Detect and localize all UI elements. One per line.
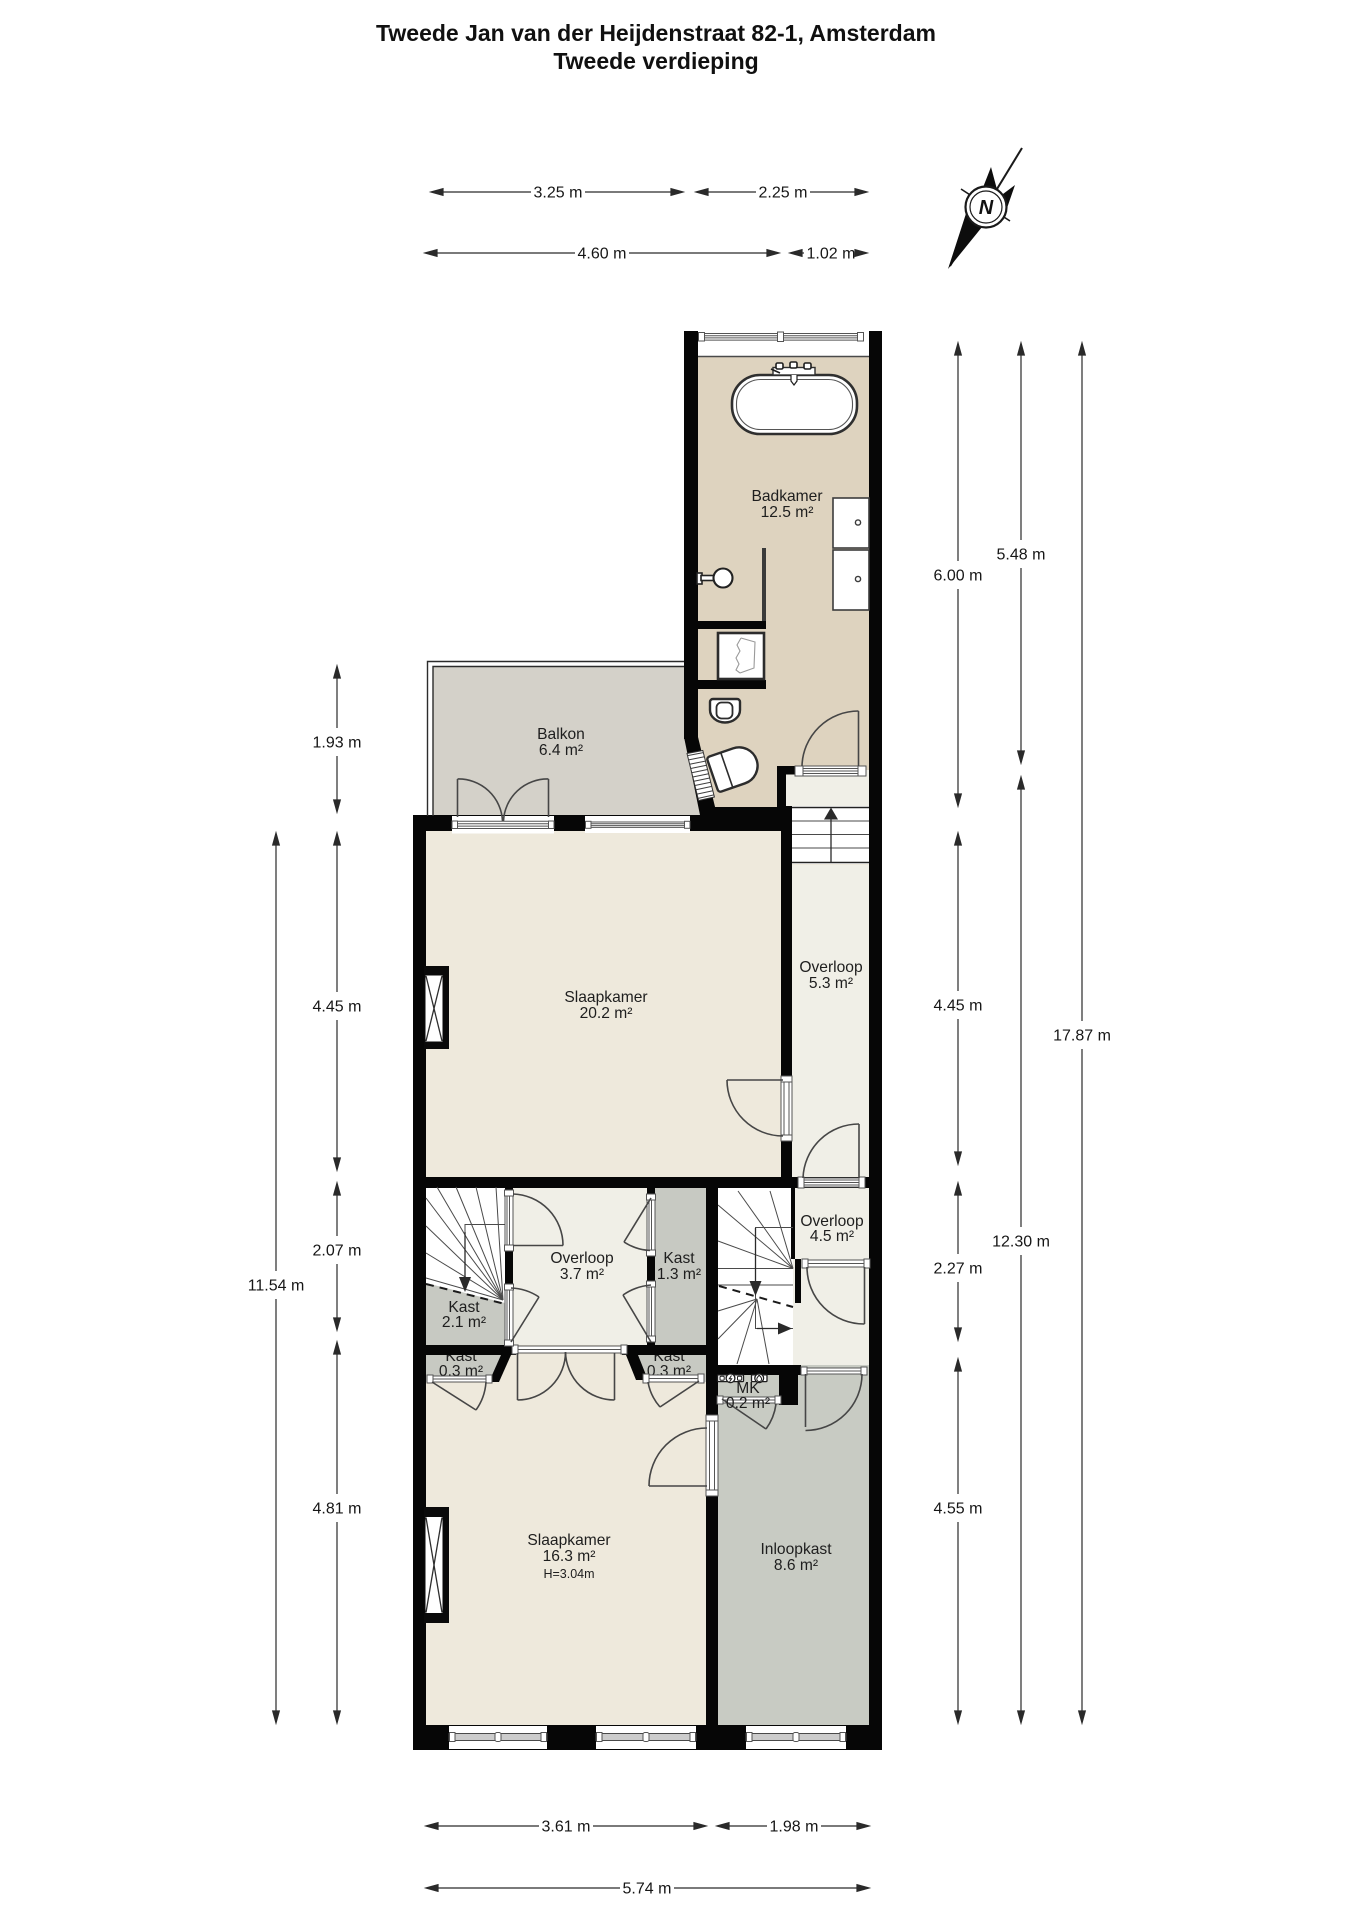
svg-text:3.7 m²: 3.7 m² (560, 1266, 604, 1283)
svg-text:Badkamer: Badkamer (751, 488, 822, 505)
svg-text:Inloopkast: Inloopkast (760, 1541, 832, 1558)
svg-text:2.27 m: 2.27 m (934, 1261, 983, 1278)
svg-text:6.4 m²: 6.4 m² (539, 742, 583, 759)
svg-text:Kast: Kast (663, 1250, 695, 1267)
svg-text:3.61 m: 3.61 m (542, 1819, 591, 1836)
svg-text:2.07 m: 2.07 m (313, 1243, 362, 1260)
svg-text:1.3 m²: 1.3 m² (657, 1266, 701, 1283)
svg-text:8.6 m²: 8.6 m² (774, 1557, 818, 1574)
svg-text:4.45 m: 4.45 m (934, 998, 983, 1015)
svg-text:5.48 m: 5.48 m (997, 547, 1046, 564)
svg-text:Tweede Jan van der Heijdenstra: Tweede Jan van der Heijdenstraat 82-1, A… (376, 20, 936, 46)
svg-text:4.55 m: 4.55 m (934, 1501, 983, 1518)
svg-text:12.5 m²: 12.5 m² (761, 504, 814, 521)
svg-text:12.30 m: 12.30 m (992, 1234, 1050, 1251)
svg-text:Tweede verdieping: Tweede verdieping (553, 48, 758, 74)
svg-text:5.3 m²: 5.3 m² (809, 975, 853, 992)
svg-text:1.98 m: 1.98 m (770, 1819, 819, 1836)
svg-text:H=3.04m: H=3.04m (543, 1567, 594, 1581)
svg-text:Balkon: Balkon (537, 726, 585, 743)
svg-text:16.3 m²: 16.3 m² (543, 1548, 596, 1565)
svg-text:0.2 m²: 0.2 m² (726, 1395, 770, 1412)
svg-text:Overloop: Overloop (550, 1250, 614, 1267)
svg-text:2.1 m²: 2.1 m² (442, 1314, 486, 1331)
svg-text:17.87 m: 17.87 m (1053, 1028, 1111, 1045)
svg-text:Slaapkamer: Slaapkamer (564, 989, 647, 1006)
svg-text:3.25 m: 3.25 m (534, 185, 583, 202)
svg-text:Overloop: Overloop (799, 959, 863, 976)
svg-text:20.2 m²: 20.2 m² (580, 1005, 633, 1022)
svg-text:4.45 m: 4.45 m (313, 999, 362, 1016)
svg-text:1.02 m: 1.02 m (807, 246, 856, 263)
svg-text:N: N (979, 197, 994, 219)
svg-text:5.74 m: 5.74 m (623, 1881, 672, 1898)
svg-text:11.54 m: 11.54 m (248, 1278, 305, 1295)
svg-text:1.93 m: 1.93 m (313, 735, 362, 752)
svg-text:4.60 m: 4.60 m (578, 246, 627, 263)
svg-text:4.81 m: 4.81 m (313, 1501, 362, 1518)
svg-text:Slaapkamer: Slaapkamer (527, 1532, 610, 1549)
svg-text:2.25 m: 2.25 m (759, 185, 808, 202)
svg-text:4.5 m²: 4.5 m² (810, 1228, 854, 1245)
svg-text:6.00 m: 6.00 m (934, 568, 983, 585)
